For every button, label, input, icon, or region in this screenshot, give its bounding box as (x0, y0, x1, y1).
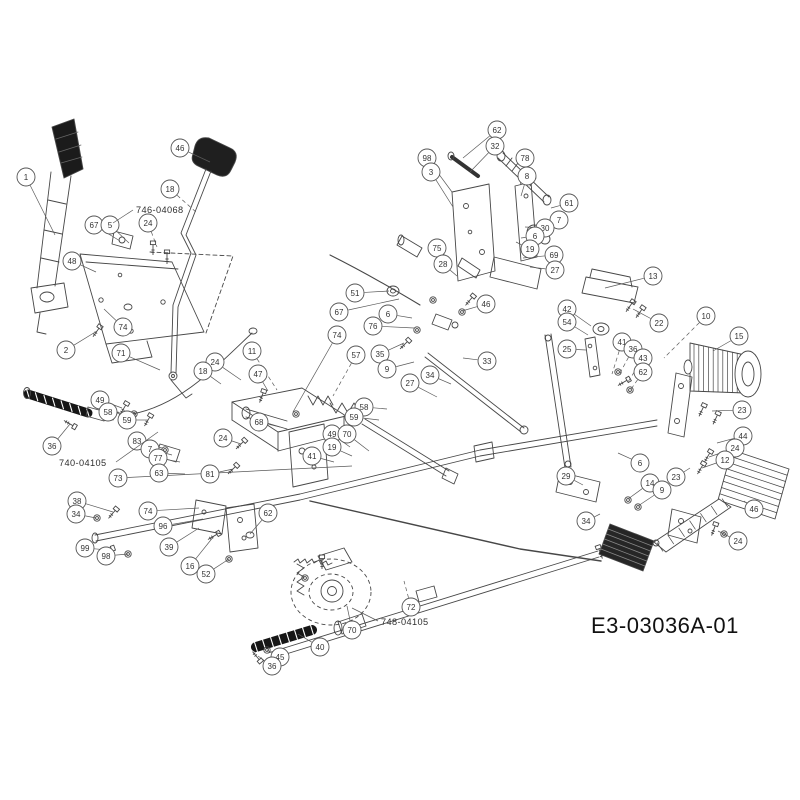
callout-8[interactable]: 8 (518, 167, 536, 185)
callout-9[interactable]: 9 (378, 360, 396, 378)
callout-54[interactable]: 54 (558, 313, 576, 331)
callout-16[interactable]: 16 (181, 557, 199, 575)
callout-40[interactable]: 40 (311, 638, 329, 656)
leader-line (418, 387, 437, 397)
svg-text:59: 59 (350, 413, 359, 422)
svg-text:73: 73 (114, 474, 123, 483)
callout-6[interactable]: 6 (631, 454, 649, 472)
leader-line (232, 441, 241, 444)
callout-11[interactable]: 11 (243, 342, 261, 360)
svg-text:39: 39 (165, 543, 174, 552)
svg-text:70: 70 (343, 430, 352, 439)
leader-line (355, 440, 369, 451)
leader-line (396, 362, 414, 367)
svg-text:6: 6 (386, 310, 391, 319)
callout-74[interactable]: 74 (139, 502, 157, 520)
svg-text:40: 40 (316, 643, 325, 652)
svg-text:96: 96 (159, 522, 168, 531)
callout-71[interactable]: 71 (112, 344, 130, 362)
leader-line (373, 408, 387, 409)
svg-text:77: 77 (154, 454, 163, 463)
callout-70[interactable]: 70 (343, 621, 361, 639)
svg-text:81: 81 (206, 470, 215, 479)
leader-line (321, 458, 334, 462)
callout-67[interactable]: 67 (85, 216, 103, 234)
svg-text:1: 1 (24, 173, 29, 182)
svg-text:34: 34 (426, 371, 435, 380)
parts-diagram: 1461867524487427136495859837776373383499… (0, 0, 800, 800)
leader-line (104, 309, 116, 320)
callout-63[interactable]: 63 (150, 464, 168, 482)
callout-36[interactable]: 36 (263, 657, 281, 675)
leader-line (450, 270, 457, 276)
svg-text:49: 49 (328, 430, 337, 439)
leader-line (177, 528, 199, 542)
callout-25[interactable]: 25 (558, 340, 576, 358)
leader-line (439, 379, 451, 384)
leader-line (115, 554, 128, 555)
svg-text:43: 43 (639, 354, 648, 363)
leader-line (575, 327, 588, 335)
svg-text:67: 67 (335, 308, 344, 317)
callout-39[interactable]: 39 (160, 538, 178, 556)
leader-line (551, 206, 560, 208)
callout-32[interactable]: 32 (486, 137, 504, 155)
drawing-number: E3-03036A-01 (591, 613, 739, 638)
leader-line (684, 468, 690, 472)
svg-text:71: 71 (117, 349, 126, 358)
leader-line (196, 536, 214, 559)
callout-13[interactable]: 13 (644, 267, 662, 285)
callout-75[interactable]: 75 (428, 239, 446, 257)
callout-27[interactable]: 27 (546, 261, 564, 279)
callout-67[interactable]: 67 (330, 303, 348, 321)
leader-line (470, 153, 488, 172)
callout-62[interactable]: 62 (259, 504, 277, 522)
callout-27[interactable]: 27 (401, 374, 419, 392)
svg-text:28: 28 (439, 260, 448, 269)
svg-text:42: 42 (563, 305, 572, 314)
callout-51[interactable]: 51 (346, 284, 364, 302)
leader-line (436, 180, 453, 207)
leader-line (74, 331, 97, 345)
callout-76[interactable]: 76 (364, 317, 382, 335)
callout-12[interactable]: 12 (716, 451, 734, 469)
svg-text:59: 59 (123, 416, 132, 425)
svg-text:23: 23 (672, 473, 681, 482)
callout-1[interactable]: 1 (17, 168, 35, 186)
leader-line (574, 480, 583, 485)
svg-text:2: 2 (64, 346, 69, 355)
svg-text:47: 47 (254, 370, 263, 379)
callout-24[interactable]: 24 (139, 214, 157, 232)
callout-34[interactable]: 34 (67, 505, 85, 523)
callout-46[interactable]: 46 (477, 295, 495, 313)
svg-text:24: 24 (734, 537, 743, 546)
svg-text:99: 99 (81, 544, 90, 553)
callout-57[interactable]: 57 (347, 346, 365, 364)
leader-line (404, 581, 409, 598)
leader-line (86, 504, 113, 512)
callout-34[interactable]: 34 (421, 366, 439, 384)
callout-73[interactable]: 73 (109, 469, 127, 487)
svg-text:36: 36 (268, 662, 277, 671)
leader-line (628, 489, 642, 499)
svg-text:24: 24 (144, 219, 153, 228)
callout-58[interactable]: 58 (99, 403, 117, 421)
callout-36[interactable]: 36 (43, 437, 61, 455)
callout-96[interactable]: 96 (154, 517, 172, 535)
callout-9[interactable]: 9 (653, 481, 671, 499)
diagram-page: 1461867524487427136495859837776373383499… (0, 0, 800, 800)
svg-text:58: 58 (360, 403, 369, 412)
svg-text:48: 48 (68, 257, 77, 266)
leader-line (618, 453, 631, 459)
leader-line (521, 237, 526, 238)
leader-line (172, 519, 203, 524)
svg-text:22: 22 (655, 319, 664, 328)
callout-28[interactable]: 28 (434, 255, 452, 273)
svg-text:70: 70 (348, 626, 357, 635)
leader-line (516, 242, 522, 245)
leader-line (58, 424, 70, 439)
callout-46[interactable]: 46 (171, 139, 189, 157)
svg-text:98: 98 (423, 154, 432, 163)
svg-text:74: 74 (144, 507, 153, 516)
svg-text:62: 62 (493, 126, 502, 135)
svg-text:49: 49 (96, 396, 105, 405)
callout-18[interactable]: 18 (161, 180, 179, 198)
callout-23[interactable]: 23 (667, 468, 685, 486)
svg-text:19: 19 (526, 245, 535, 254)
leader-line (594, 514, 600, 517)
callout-34[interactable]: 34 (577, 512, 595, 530)
callout-81[interactable]: 81 (201, 465, 219, 483)
svg-text:29: 29 (562, 472, 571, 481)
part-label-leader (113, 210, 133, 223)
svg-text:44: 44 (739, 432, 748, 441)
svg-text:38: 38 (73, 497, 82, 506)
leader-line (293, 343, 332, 412)
svg-text:6: 6 (533, 232, 538, 241)
callout-48[interactable]: 48 (63, 252, 81, 270)
callout-19[interactable]: 19 (323, 438, 341, 456)
svg-text:51: 51 (351, 289, 360, 298)
svg-text:78: 78 (521, 154, 530, 163)
callout-33[interactable]: 33 (478, 352, 496, 370)
svg-text:12: 12 (721, 456, 730, 465)
svg-text:19: 19 (328, 443, 337, 452)
svg-text:34: 34 (582, 517, 591, 526)
callout-72[interactable]: 72 (402, 598, 420, 616)
leader-line (712, 410, 733, 411)
callout-10[interactable]: 10 (697, 307, 715, 325)
callout-3[interactable]: 3 (422, 163, 440, 181)
callout-74[interactable]: 74 (114, 318, 132, 336)
callout-balloons: 1461867524487427136495859837776373383499… (17, 121, 763, 675)
callout-99[interactable]: 99 (76, 539, 94, 557)
svg-text:61: 61 (565, 199, 574, 208)
svg-text:74: 74 (119, 323, 128, 332)
leader-line (576, 349, 586, 350)
callout-29[interactable]: 29 (557, 467, 575, 485)
callout-24[interactable]: 24 (729, 532, 747, 550)
svg-text:16: 16 (186, 562, 195, 571)
svg-text:41: 41 (308, 452, 317, 461)
leader-line (575, 314, 591, 326)
svg-text:72: 72 (407, 603, 416, 612)
callout-6[interactable]: 6 (379, 305, 397, 323)
svg-text:54: 54 (563, 318, 572, 327)
svg-text:8: 8 (525, 172, 530, 181)
callout-62[interactable]: 62 (488, 121, 506, 139)
svg-text:34: 34 (72, 510, 81, 519)
callout-41[interactable]: 41 (303, 447, 321, 465)
svg-text:18: 18 (166, 185, 175, 194)
leader-line (718, 531, 730, 537)
leader-line (341, 451, 352, 456)
callout-15[interactable]: 15 (730, 327, 748, 345)
leader-line (521, 185, 524, 196)
callout-68[interactable]: 68 (250, 413, 268, 431)
svg-text:98: 98 (102, 552, 111, 561)
leader-line (397, 316, 412, 318)
svg-text:23: 23 (738, 406, 747, 415)
svg-text:62: 62 (639, 368, 648, 377)
leader-line (382, 326, 414, 328)
svg-text:5: 5 (108, 221, 113, 230)
svg-text:27: 27 (551, 266, 560, 275)
part-label-leader (352, 608, 378, 621)
leader-line (211, 377, 221, 384)
svg-text:9: 9 (385, 365, 390, 374)
svg-text:67: 67 (90, 221, 99, 230)
svg-text:33: 33 (483, 357, 492, 366)
leader-line (364, 291, 389, 292)
svg-text:52: 52 (202, 570, 211, 579)
leader-line (168, 473, 185, 474)
svg-text:36: 36 (48, 442, 57, 451)
callout-23[interactable]: 23 (733, 401, 751, 419)
svg-text:24: 24 (219, 434, 228, 443)
leader-line (713, 341, 731, 351)
svg-text:35: 35 (376, 350, 385, 359)
svg-text:13: 13 (649, 272, 658, 281)
callout-78[interactable]: 78 (516, 149, 534, 167)
svg-text:32: 32 (491, 142, 500, 151)
svg-text:3: 3 (429, 168, 434, 177)
svg-text:63: 63 (155, 469, 164, 478)
svg-text:46: 46 (176, 144, 185, 153)
svg-text:9: 9 (660, 486, 665, 495)
leader-line (462, 307, 477, 311)
callout-5[interactable]: 5 (101, 216, 119, 234)
svg-text:62: 62 (264, 509, 273, 518)
part-number-label: 748-04105 (381, 617, 429, 627)
callout-46[interactable]: 46 (745, 500, 763, 518)
svg-text:58: 58 (104, 408, 113, 417)
leader-line (214, 559, 229, 569)
svg-text:74: 74 (333, 331, 342, 340)
leader-line (333, 363, 351, 396)
svg-text:24: 24 (731, 444, 740, 453)
svg-text:46: 46 (482, 300, 491, 309)
leader-line (620, 357, 628, 373)
svg-text:68: 68 (255, 418, 264, 427)
leader-line (633, 309, 651, 318)
callout-74[interactable]: 74 (328, 326, 346, 344)
svg-text:24: 24 (211, 358, 220, 367)
svg-text:6: 6 (638, 459, 643, 468)
callout-59[interactable]: 59 (118, 411, 136, 429)
leader-line (81, 265, 96, 272)
part-number-label: 740-04105 (59, 458, 107, 468)
callout-2[interactable]: 2 (57, 341, 75, 359)
callout-22[interactable]: 22 (650, 314, 668, 332)
callout-19[interactable]: 19 (521, 240, 539, 258)
leader-line (638, 495, 654, 506)
svg-text:46: 46 (750, 505, 759, 514)
svg-text:7: 7 (557, 216, 562, 225)
callout-52-highlighted[interactable]: 52 (197, 565, 215, 583)
leader-line (223, 367, 241, 380)
svg-text:10: 10 (702, 312, 711, 321)
leader-line (30, 185, 55, 235)
leader-line (463, 358, 478, 360)
leader-line (157, 508, 199, 510)
svg-text:18: 18 (199, 367, 208, 376)
svg-text:15: 15 (735, 332, 744, 341)
svg-text:69: 69 (550, 251, 559, 260)
callout-98[interactable]: 98 (97, 547, 115, 565)
callout-18[interactable]: 18 (194, 362, 212, 380)
callout-47[interactable]: 47 (249, 365, 267, 383)
svg-text:11: 11 (248, 347, 257, 356)
callout-61[interactable]: 61 (560, 194, 578, 212)
svg-text:25: 25 (563, 345, 572, 354)
leader-line (130, 357, 160, 370)
callout-70[interactable]: 70 (338, 425, 356, 443)
svg-text:75: 75 (433, 244, 442, 253)
svg-text:57: 57 (352, 351, 361, 360)
svg-text:27: 27 (406, 379, 415, 388)
callout-62[interactable]: 62 (634, 363, 652, 381)
svg-text:76: 76 (369, 322, 378, 331)
callout-59[interactable]: 59 (345, 408, 363, 426)
part-number-label: 746-04068 (136, 205, 184, 215)
callout-24[interactable]: 24 (214, 429, 232, 447)
